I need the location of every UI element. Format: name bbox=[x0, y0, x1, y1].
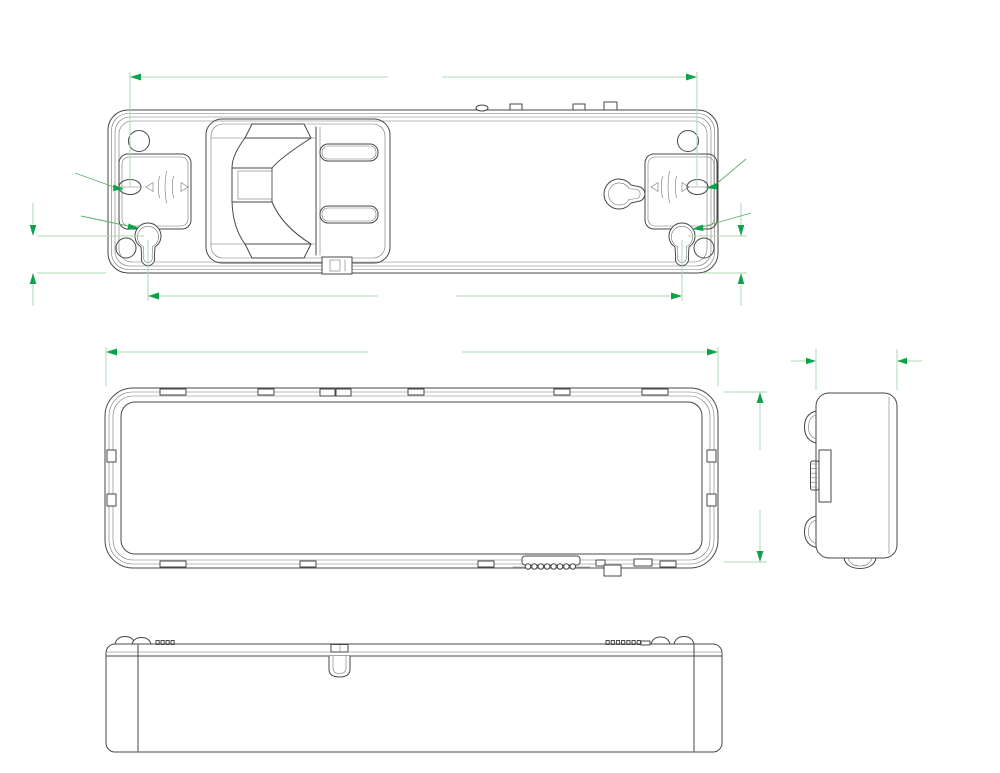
back-housing-outline bbox=[108, 110, 718, 273]
plug-prong-top bbox=[320, 144, 378, 161]
front-power-switch bbox=[513, 556, 652, 576]
lens-bezel bbox=[121, 402, 702, 554]
callout-slot-dia-left bbox=[75, 173, 124, 191]
plug-body bbox=[211, 124, 316, 258]
callout-slot-dia-right bbox=[706, 159, 746, 190]
top-tab bbox=[604, 102, 617, 110]
side-switch bbox=[811, 450, 832, 502]
side-clip-bottom bbox=[805, 516, 817, 548]
callout-keyhole-dia-left bbox=[81, 216, 139, 230]
cord-tab bbox=[322, 257, 352, 274]
bottom-tab bbox=[604, 565, 621, 576]
screw-boss-left bbox=[129, 131, 150, 152]
bottom-clips-left bbox=[115, 637, 174, 645]
dimensions bbox=[30, 72, 922, 562]
dim-back-offset-left bbox=[30, 203, 144, 306]
side-outline bbox=[816, 393, 897, 558]
dim-back-slot-span bbox=[130, 72, 697, 186]
bottom-view bbox=[106, 637, 722, 753]
front-view bbox=[105, 388, 718, 576]
dim-front-height bbox=[724, 392, 767, 562]
side-view bbox=[805, 393, 898, 569]
bottom-clips-right bbox=[606, 637, 694, 646]
technical-drawing bbox=[0, 0, 1000, 773]
drawing-canvas bbox=[0, 0, 1000, 773]
mount-bracket-right bbox=[645, 154, 717, 229]
bottom-center-latch bbox=[329, 645, 350, 678]
grip-ribs-left bbox=[146, 171, 188, 203]
front-edge-tabs bbox=[107, 389, 716, 567]
dim-front-width bbox=[106, 347, 718, 386]
side-foot bbox=[844, 558, 876, 569]
dim-back-keyhole-span bbox=[148, 240, 682, 301]
bottom-outline bbox=[106, 644, 722, 752]
plug-prong-bottom bbox=[320, 206, 378, 223]
back-view bbox=[108, 102, 718, 274]
screw-boss-right bbox=[678, 131, 699, 152]
keyhole-slot-left bbox=[116, 223, 161, 266]
plug-recess bbox=[206, 119, 390, 263]
dim-side-depth bbox=[791, 349, 922, 390]
hanger-keyhole bbox=[604, 179, 645, 209]
side-clip-top bbox=[805, 411, 817, 443]
front-housing-outline bbox=[105, 388, 718, 568]
grip-ribs-right bbox=[651, 171, 689, 203]
